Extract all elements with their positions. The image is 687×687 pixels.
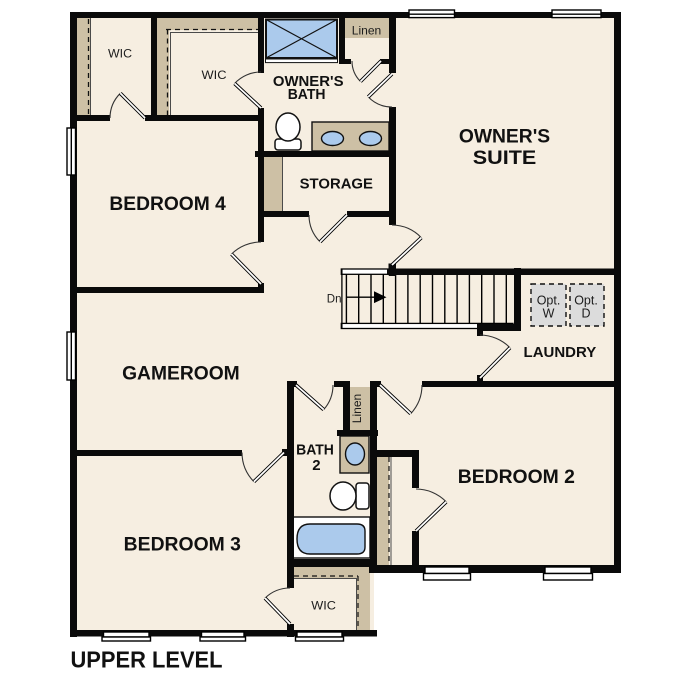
svg-text:BEDROOM 3: BEDROOM 3 <box>124 535 241 556</box>
svg-text:UPPER LEVEL: UPPER LEVEL <box>71 647 223 673</box>
svg-text:2: 2 <box>312 457 320 474</box>
svg-text:BATH: BATH <box>288 86 326 103</box>
svg-text:Opt.: Opt. <box>537 294 561 308</box>
svg-text:OWNER'S: OWNER'S <box>459 126 550 147</box>
svg-text:D: D <box>581 307 590 321</box>
svg-text:WIC: WIC <box>311 599 336 613</box>
svg-text:SUITE: SUITE <box>473 148 537 169</box>
svg-text:W: W <box>543 307 555 321</box>
svg-text:Linen: Linen <box>350 394 364 424</box>
svg-text:Linen: Linen <box>352 24 382 38</box>
svg-text:BATH: BATH <box>296 442 334 459</box>
svg-text:Opt.: Opt. <box>574 294 598 308</box>
svg-text:GAMEROOM: GAMEROOM <box>122 364 240 385</box>
svg-text:WIC: WIC <box>202 68 227 82</box>
svg-text:LAUNDRY: LAUNDRY <box>524 345 597 361</box>
svg-text:Dn: Dn <box>327 294 342 306</box>
svg-text:BEDROOM 2: BEDROOM 2 <box>458 467 575 488</box>
svg-text:STORAGE: STORAGE <box>300 177 374 193</box>
svg-text:WIC: WIC <box>108 47 132 61</box>
svg-text:BEDROOM 4: BEDROOM 4 <box>109 194 226 215</box>
